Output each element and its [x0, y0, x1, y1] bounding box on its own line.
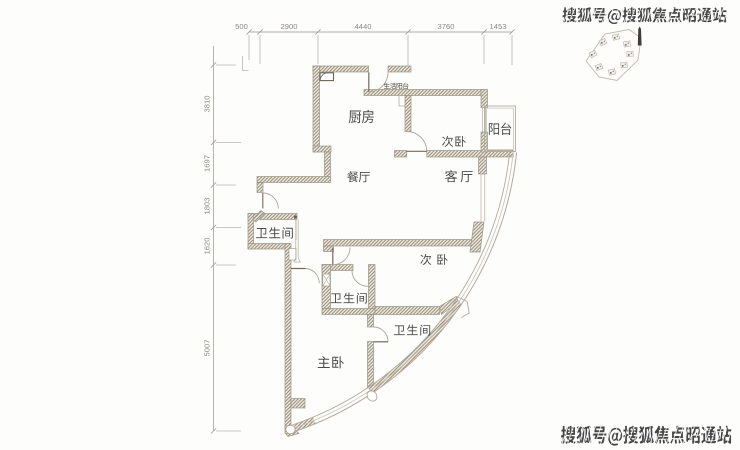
svg-text:500: 500: [235, 22, 248, 31]
svg-text:1620: 1620: [203, 238, 212, 255]
svg-text:2900: 2900: [281, 22, 298, 31]
svg-text:4440: 4440: [355, 22, 372, 31]
svg-text:3760: 3760: [438, 22, 455, 31]
svg-text:1803: 1803: [203, 198, 212, 215]
svg-text:5007: 5007: [203, 340, 212, 357]
svg-text:3810: 3810: [203, 96, 212, 113]
svg-text:1697: 1697: [203, 155, 212, 172]
svg-text:1453: 1453: [490, 22, 507, 31]
